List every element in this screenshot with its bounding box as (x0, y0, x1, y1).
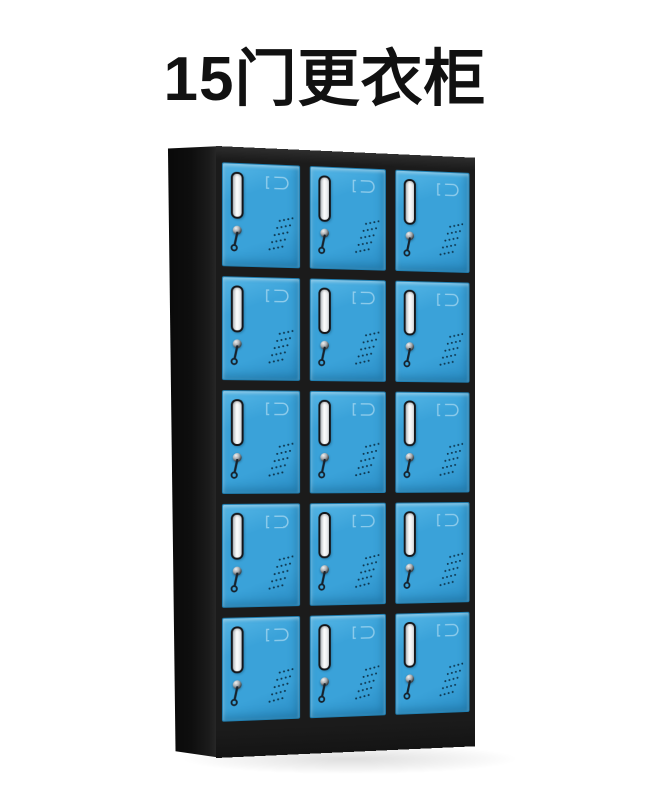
door-handle-recess (404, 179, 416, 225)
door-handle-recess (404, 400, 416, 446)
key-icon (230, 686, 243, 709)
vent-holes-icon (354, 441, 380, 479)
key-icon (230, 345, 243, 368)
key-icon (403, 237, 415, 260)
door-handle-recess (231, 513, 244, 560)
locker-door (310, 391, 386, 494)
door-handle-recess (231, 626, 244, 673)
name-card-emboss-icon (435, 402, 462, 419)
door-handle-recess (404, 511, 416, 557)
name-card-emboss-icon (435, 512, 462, 529)
vent-holes-icon (438, 551, 463, 589)
key-icon (403, 459, 415, 481)
door-handle-recess (404, 622, 416, 668)
vent-holes-icon (354, 330, 380, 369)
locker-door (395, 170, 469, 273)
door-handle-recess (404, 290, 416, 336)
door-handle-recess (318, 288, 330, 335)
name-card-emboss-icon (350, 401, 377, 418)
vent-holes-icon (267, 328, 293, 367)
vent-holes-icon (354, 553, 380, 592)
name-card-emboss-icon (264, 287, 292, 305)
locker-door (395, 392, 469, 493)
locker-door (395, 612, 469, 715)
vent-holes-icon (438, 331, 463, 369)
locker-door (222, 616, 300, 722)
name-card-emboss-icon (435, 622, 462, 639)
name-card-emboss-icon (350, 289, 377, 306)
vent-holes-icon (354, 218, 380, 257)
vent-holes-icon (267, 667, 293, 707)
door-handle-recess (318, 512, 330, 558)
vent-holes-icon (438, 441, 463, 479)
cabinet-side-panel (166, 146, 222, 758)
door-handle-recess (231, 399, 244, 446)
key-icon (230, 459, 243, 482)
door-handle-recess (231, 285, 244, 332)
key-icon (317, 347, 329, 370)
locker-product-image (0, 0, 650, 790)
door-handle-recess (318, 624, 330, 671)
key-icon (403, 680, 415, 703)
door-handle-recess (318, 400, 330, 446)
vent-holes-icon (267, 441, 293, 480)
locker-door (222, 276, 300, 381)
locker-door (395, 502, 469, 604)
vent-holes-icon (438, 661, 463, 700)
name-card-emboss-icon (435, 291, 462, 308)
door-handle-recess (318, 175, 330, 222)
locker-door (222, 162, 300, 268)
name-card-emboss-icon (350, 178, 377, 196)
key-icon (230, 573, 243, 596)
key-icon (317, 234, 329, 257)
name-card-emboss-icon (350, 513, 377, 530)
name-card-emboss-icon (435, 181, 462, 198)
locker-door (310, 166, 386, 271)
vent-holes-icon (354, 664, 380, 703)
vent-holes-icon (267, 215, 293, 254)
name-card-emboss-icon (350, 624, 377, 641)
name-card-emboss-icon (264, 400, 292, 417)
locker-door (310, 278, 386, 381)
locker-door (222, 503, 300, 608)
locker-door (310, 503, 386, 606)
locker-door (222, 390, 300, 494)
name-card-emboss-icon (264, 174, 292, 192)
key-icon (317, 571, 329, 594)
locker-door (310, 614, 386, 718)
name-card-emboss-icon (264, 626, 292, 644)
cabinet-front-wrapper (216, 146, 488, 758)
key-icon (403, 569, 415, 592)
name-card-emboss-icon (264, 513, 292, 530)
key-icon (317, 459, 329, 482)
key-icon (230, 231, 243, 254)
vent-holes-icon (267, 554, 293, 593)
locker-door-grid (216, 146, 475, 758)
cabinet-front-frame (216, 146, 475, 758)
door-handle-recess (231, 172, 244, 219)
product-page: 15门更衣柜 (0, 0, 650, 790)
locker-door (395, 281, 469, 383)
vent-holes-icon (438, 221, 463, 259)
key-icon (317, 683, 329, 706)
key-icon (403, 348, 415, 371)
